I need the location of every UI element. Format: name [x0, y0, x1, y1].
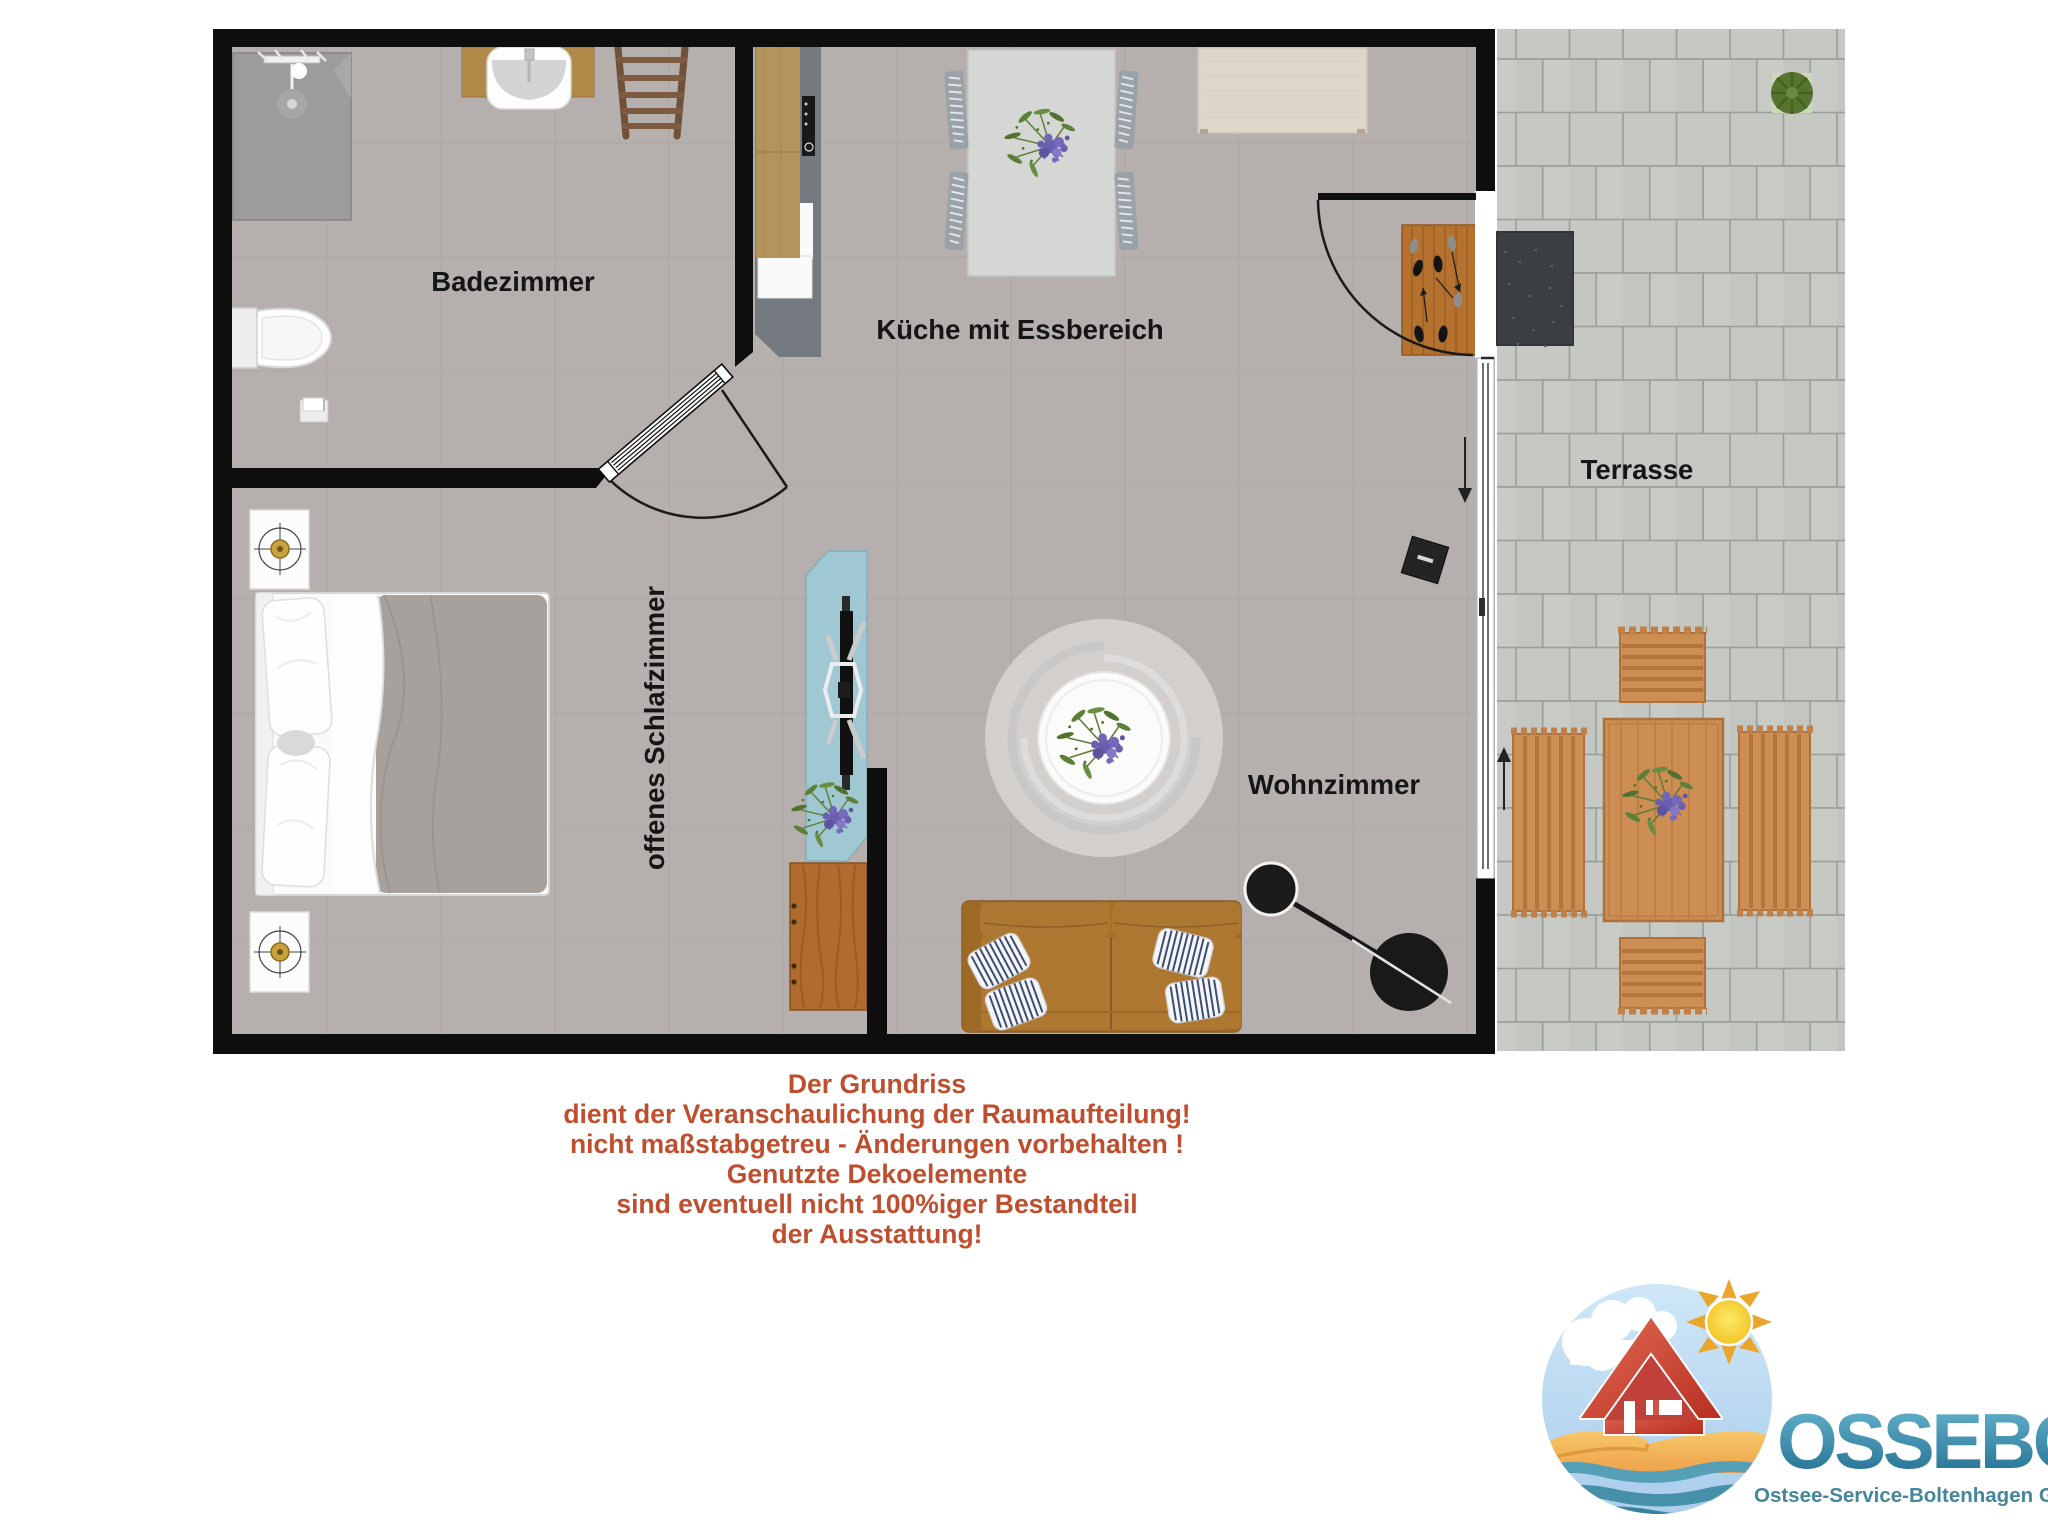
svg-text:nicht maßstabgetreu - Änderung: nicht maßstabgetreu - Änderungen vorbeha… [570, 1129, 1184, 1159]
svg-text:Der Grundriss: Der Grundriss [788, 1069, 966, 1099]
svg-text:Genutzte Dekoelemente: Genutzte Dekoelemente [727, 1159, 1027, 1189]
svg-text:Terrasse: Terrasse [1581, 454, 1694, 485]
svg-text:dient der Veranschaulichung de: dient der Veranschaulichung der Raumauft… [563, 1099, 1190, 1129]
svg-text:Wohnzimmer: Wohnzimmer [1248, 769, 1420, 800]
svg-text:Küche mit Essbereich: Küche mit Essbereich [876, 314, 1163, 345]
svg-text:offenes Schlafzimmer: offenes Schlafzimmer [639, 586, 670, 871]
svg-text:Badezimmer: Badezimmer [431, 266, 595, 297]
svg-text:Ostsee-Service-Boltenhagen Gmb: Ostsee-Service-Boltenhagen GmbH [1754, 1484, 2048, 1507]
svg-text:der Ausstattung!: der Ausstattung! [771, 1219, 982, 1249]
svg-text:OSSEBO: OSSEBO [1777, 1397, 2048, 1485]
svg-text:sind eventuell nicht 100%iger: sind eventuell nicht 100%iger Bestandtei… [616, 1189, 1137, 1219]
